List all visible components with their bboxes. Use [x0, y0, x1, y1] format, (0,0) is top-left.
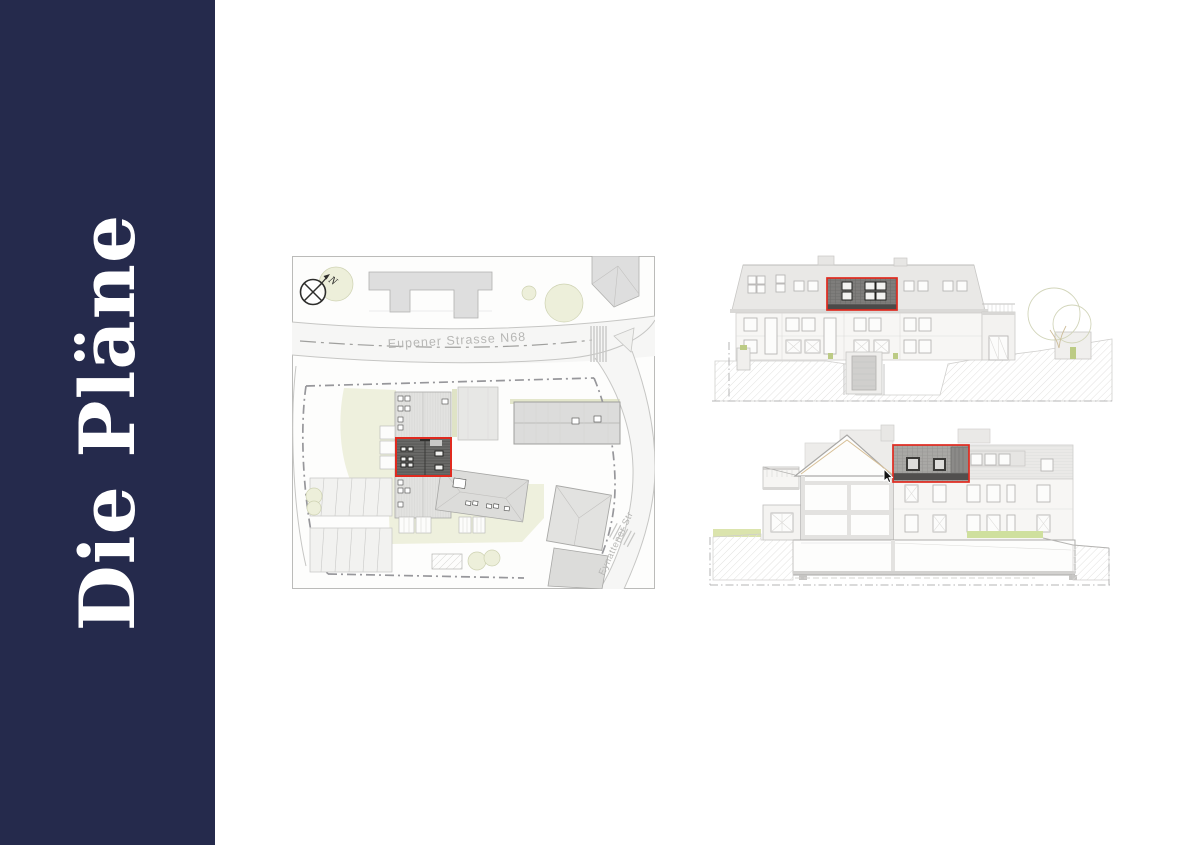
garage-entrance: [844, 352, 884, 395]
highlighted-unit-section: [893, 445, 969, 482]
site-plan-svg: Eupener Strasse N68 Eynattener Str N: [292, 256, 655, 589]
front-elevation-svg: [708, 252, 1116, 407]
cross-section-drawing: [705, 417, 1115, 599]
ground-left: [713, 534, 793, 580]
ground-right: [1073, 545, 1109, 580]
highlighted-unit-front: [827, 278, 897, 310]
garden-tree-shed: [1028, 288, 1091, 359]
left-gate: [737, 345, 750, 370]
page-title: Die Pläne: [63, 214, 152, 631]
facade-section: [893, 479, 1073, 540]
highlighted-unit-plan: [396, 438, 451, 476]
left-balconies: [713, 467, 801, 540]
right-annex: [982, 304, 1015, 360]
neighbour-building-east: [514, 402, 620, 444]
sidebar: Die Pläne: [0, 0, 215, 845]
annex-building: [458, 387, 498, 440]
front-elevation-drawing: [708, 252, 1116, 407]
underground-garage: [793, 540, 1077, 580]
hedge: [967, 531, 1043, 538]
site-plan-drawing: Eupener Strasse N68 Eynattener Str N: [292, 256, 655, 589]
cross-section-svg: [705, 417, 1115, 599]
